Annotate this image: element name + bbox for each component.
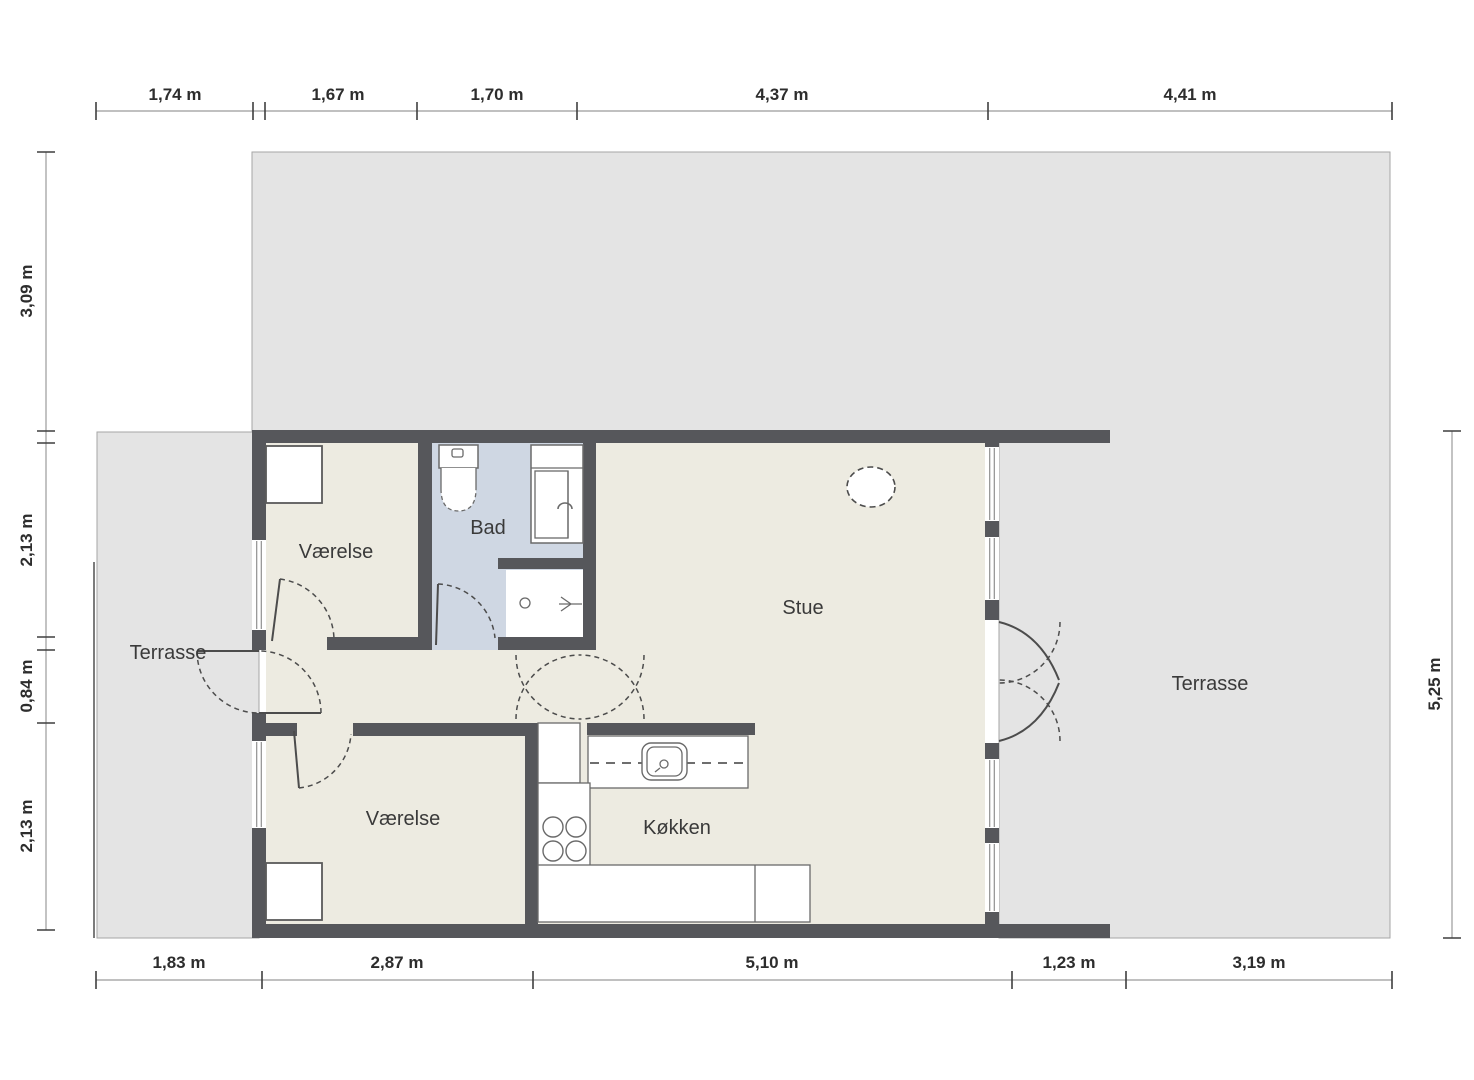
wall-left-a — [252, 430, 266, 540]
wall-bedroom2-top-left — [252, 723, 297, 736]
wall-bedroom2-top-right — [353, 723, 538, 736]
dim-label: 3,19 m — [1233, 953, 1286, 972]
wall-right-post-b — [985, 521, 999, 537]
room-label-bad: Bad — [470, 517, 506, 539]
dim-label: 1,23 m — [1043, 953, 1096, 972]
dim-label: 2,87 m — [371, 953, 424, 972]
wall-top — [252, 430, 1110, 443]
wall-right-post-e — [985, 828, 999, 843]
dim-label: 2,13 m — [17, 800, 36, 853]
wall-kitchen-top — [587, 723, 755, 735]
shower-icon — [531, 445, 583, 543]
room-label-terrasse-left: Terrasse — [130, 642, 207, 664]
wardrobe-icon — [266, 446, 322, 503]
room-label-terrasse-right: Terrasse — [1172, 673, 1249, 695]
window-bedroom2 — [252, 741, 266, 828]
burner-icon — [566, 817, 586, 837]
interior-floor — [266, 443, 985, 924]
room-label-vaerelse-top: Værelse — [299, 541, 373, 563]
wall-right-post-d — [985, 743, 999, 759]
dim-label: 1,67 m — [312, 85, 365, 104]
dim-label: 5,25 m — [1425, 658, 1444, 711]
wall-right-post-a — [985, 430, 999, 447]
wall-right-post-f — [985, 912, 999, 938]
burner-icon — [543, 841, 563, 861]
wall-bedroom2-kitchen — [525, 723, 538, 938]
room-label-vaerelse-bottom: Værelse — [366, 808, 440, 830]
wall-left-b — [252, 630, 266, 650]
window-stue-1 — [985, 447, 999, 521]
dim-label: 5,10 m — [746, 953, 799, 972]
window-stue-4 — [985, 843, 999, 912]
dim-bottom: 1,83 m 2,87 m 5,10 m 1,23 m 3,19 m — [96, 953, 1392, 989]
kitchen-island — [588, 736, 748, 788]
floor-plan-svg: Terrasse Værelse Bad Stue Værelse Køkken… — [0, 0, 1474, 1080]
window-bedroom1 — [252, 540, 266, 630]
burner-icon — [566, 841, 586, 861]
dim-label: 3,09 m — [17, 265, 36, 318]
dim-label: 2,13 m — [17, 514, 36, 567]
terrace-left-area — [97, 432, 259, 938]
kitchen-counter-box — [538, 723, 580, 783]
stue-table-icon — [847, 467, 895, 507]
wardrobe-icon — [266, 863, 322, 920]
dim-label: 1,83 m — [153, 953, 206, 972]
wall-bedroom1-bath — [418, 443, 432, 650]
wall-bath-bottom — [498, 637, 596, 650]
kitchen-counter-bottom — [538, 865, 810, 922]
wall-left-d — [252, 828, 266, 938]
floor-plan-page: Terrasse Værelse Bad Stue Værelse Køkken… — [0, 0, 1474, 1080]
room-label-koekken: Køkken — [643, 817, 711, 839]
dim-label: 0,84 m — [17, 660, 36, 713]
dim-label: 1,70 m — [471, 85, 524, 104]
window-stue-2 — [985, 537, 999, 600]
dim-right: 5,25 m — [1425, 431, 1461, 938]
wall-bath-stue — [583, 430, 596, 650]
floor-drain-icon — [520, 598, 530, 608]
dim-left: 3,09 m 2,13 m 0,84 m 2,13 m — [17, 152, 55, 930]
wall-right-post-c — [985, 600, 999, 620]
room-label-stue: Stue — [782, 597, 823, 619]
dim-label: 4,41 m — [1164, 85, 1217, 104]
wall-bedroom1-bottom — [327, 637, 418, 650]
window-stue-3 — [985, 759, 999, 828]
wall-shower-room-stub — [498, 558, 596, 569]
dim-top: 1,74 m 1,67 m 1,70 m 4,37 m 4,41 m — [96, 85, 1392, 120]
toilet-icon — [439, 445, 478, 511]
wall-bottom — [252, 924, 1110, 938]
dim-label: 4,37 m — [756, 85, 809, 104]
burner-icon — [543, 817, 563, 837]
stove-icon — [538, 783, 590, 867]
floors — [266, 443, 985, 924]
dim-label: 1,74 m — [149, 85, 202, 104]
